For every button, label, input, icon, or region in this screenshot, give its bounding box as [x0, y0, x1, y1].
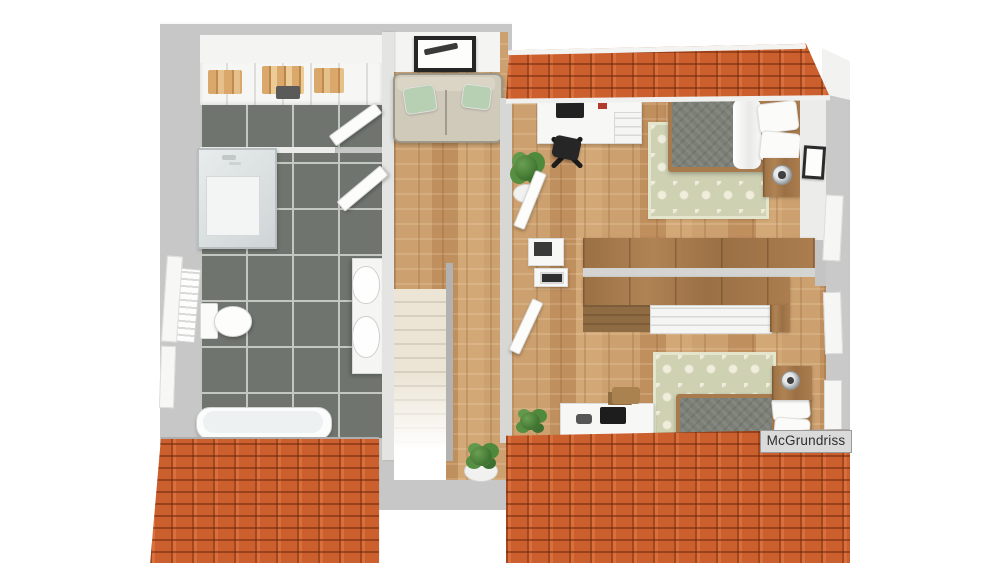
sink-basin-1 [352, 266, 380, 304]
window-east-2 [823, 292, 843, 355]
watermark-badge: McGrundriss [760, 430, 852, 453]
wardrobe-south-dresser [650, 305, 772, 334]
hallway-plant-icon [470, 446, 492, 466]
storage-north-wall-face [200, 35, 382, 65]
wardrobe-south-top [583, 277, 790, 305]
staircase-void [394, 458, 446, 480]
bedroom-top-lamp-icon [772, 165, 792, 185]
window-west-2 [159, 346, 176, 408]
floorplan-3d-render: McGrundriss [0, 0, 1000, 563]
wall-vent-slot [540, 272, 564, 284]
shelf-items-towels-3 [314, 68, 344, 93]
desk-shoes [576, 414, 592, 424]
sofa-seat-split [445, 90, 447, 135]
sink-basin-2 [352, 316, 380, 358]
wall-media-screen [534, 242, 552, 256]
bedroom-bottom-lamp-icon [781, 371, 800, 390]
bedroom-top-picture-frame-icon [802, 145, 826, 179]
shower-tray [206, 176, 260, 236]
roof-bottom-left [150, 437, 380, 563]
toilet-bowl [214, 306, 252, 337]
staircase-stringer [446, 263, 453, 461]
shower-head-icon [222, 155, 236, 160]
wardrobe-south-shelf [583, 305, 650, 332]
shelf-items-towels-1 [208, 70, 242, 94]
desk-drawer-unit [614, 112, 642, 144]
sofa-pillow-left [402, 84, 438, 116]
wardrobe-north [583, 238, 815, 268]
shelf-appliance [276, 86, 300, 99]
window-east-1 [822, 195, 843, 262]
wardrobe-south-end [770, 305, 790, 332]
bedroom-top-pillow-1 [756, 100, 799, 135]
desk-laptop-icon [556, 102, 584, 118]
sofa-pillow-right [461, 83, 493, 110]
desk-bags [612, 387, 640, 404]
staircase [394, 289, 446, 461]
picture-frame-icon [414, 36, 476, 72]
bedroom-bottom-laptop-icon [600, 407, 626, 424]
bathtub-basin [203, 411, 323, 433]
bedroom-bottom-plant-icon [520, 412, 540, 430]
wall-hallway-bedrooms [500, 98, 512, 443]
window-east-3 [824, 380, 842, 430]
divider-wall [583, 268, 815, 277]
desk-red-item [598, 103, 607, 109]
